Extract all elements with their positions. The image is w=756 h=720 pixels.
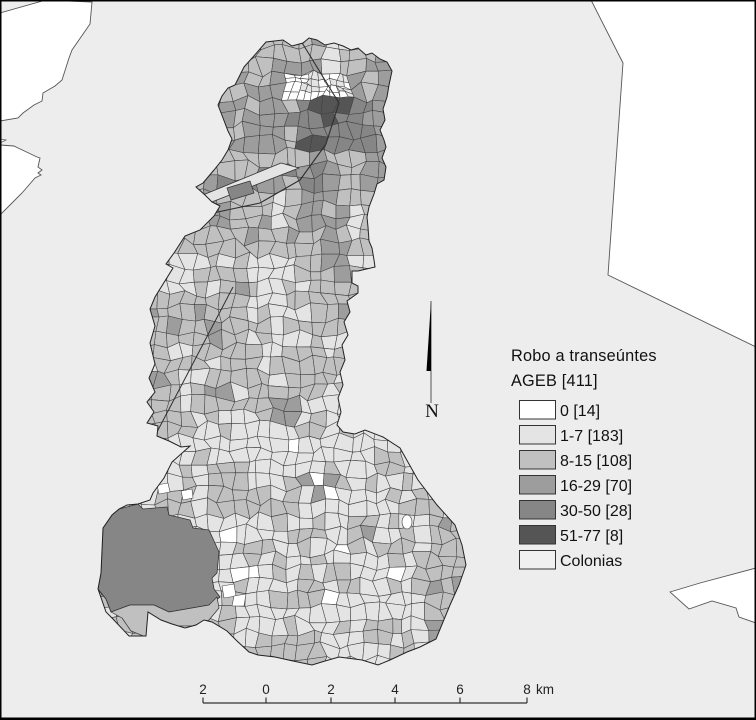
svg-text:1-7 [183]: 1-7 [183] — [560, 428, 623, 445]
svg-text:2: 2 — [199, 682, 207, 697]
svg-text:0: 0 — [262, 682, 270, 697]
svg-text:AGEB [411]: AGEB [411] — [511, 372, 598, 390]
svg-text:0 [14]: 0 [14] — [560, 403, 600, 420]
svg-text:30-50 [28]: 30-50 [28] — [560, 503, 632, 520]
svg-text:N: N — [425, 401, 439, 422]
svg-text:51-77 [8]: 51-77 [8] — [560, 528, 623, 545]
svg-text:2: 2 — [327, 682, 335, 697]
svg-text:8: 8 — [523, 682, 531, 697]
svg-text:6: 6 — [456, 682, 464, 697]
svg-text:4: 4 — [391, 682, 399, 697]
svg-text:Colonias: Colonias — [560, 553, 622, 570]
svg-text:8-15 [108]: 8-15 [108] — [560, 453, 632, 470]
svg-text:km: km — [536, 682, 554, 697]
svg-text:Robo a transeúntes: Robo a transeúntes — [511, 347, 657, 365]
svg-text:16-29 [70]: 16-29 [70] — [560, 478, 632, 495]
